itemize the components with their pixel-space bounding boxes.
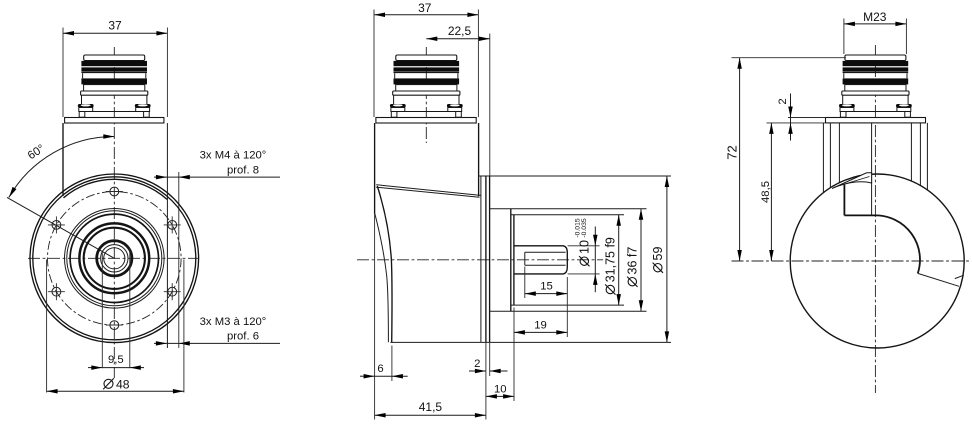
svg-text:6: 6 xyxy=(377,363,383,375)
svg-text:3x M4 à 120°: 3x M4 à 120° xyxy=(200,150,267,162)
svg-text:10: 10 xyxy=(578,240,592,254)
svg-text:2: 2 xyxy=(777,98,789,104)
svg-text:31,75 f9: 31,75 f9 xyxy=(604,237,618,282)
svg-text:59: 59 xyxy=(651,247,665,261)
svg-text:3x M3 à 120°: 3x M3 à 120° xyxy=(200,316,267,328)
svg-text:prof. 8: prof. 8 xyxy=(227,164,259,176)
svg-text:19: 19 xyxy=(534,319,547,331)
svg-text:M23: M23 xyxy=(863,10,887,24)
svg-text:2: 2 xyxy=(474,358,480,370)
svg-text:41,5: 41,5 xyxy=(419,400,443,414)
svg-text:36 f7: 36 f7 xyxy=(626,247,640,275)
svg-text:prof. 6: prof. 6 xyxy=(227,331,259,343)
svg-text:-0.035: -0.035 xyxy=(581,218,588,237)
svg-text:22,5: 22,5 xyxy=(448,24,472,38)
svg-text:72: 72 xyxy=(725,145,740,159)
svg-text:48,5: 48,5 xyxy=(760,181,772,203)
svg-text:9,5: 9,5 xyxy=(108,354,124,366)
svg-text:37: 37 xyxy=(108,19,122,33)
svg-text:15: 15 xyxy=(540,281,553,293)
svg-text:10: 10 xyxy=(494,384,507,396)
svg-text:48: 48 xyxy=(116,377,130,391)
svg-text:37: 37 xyxy=(418,1,432,15)
